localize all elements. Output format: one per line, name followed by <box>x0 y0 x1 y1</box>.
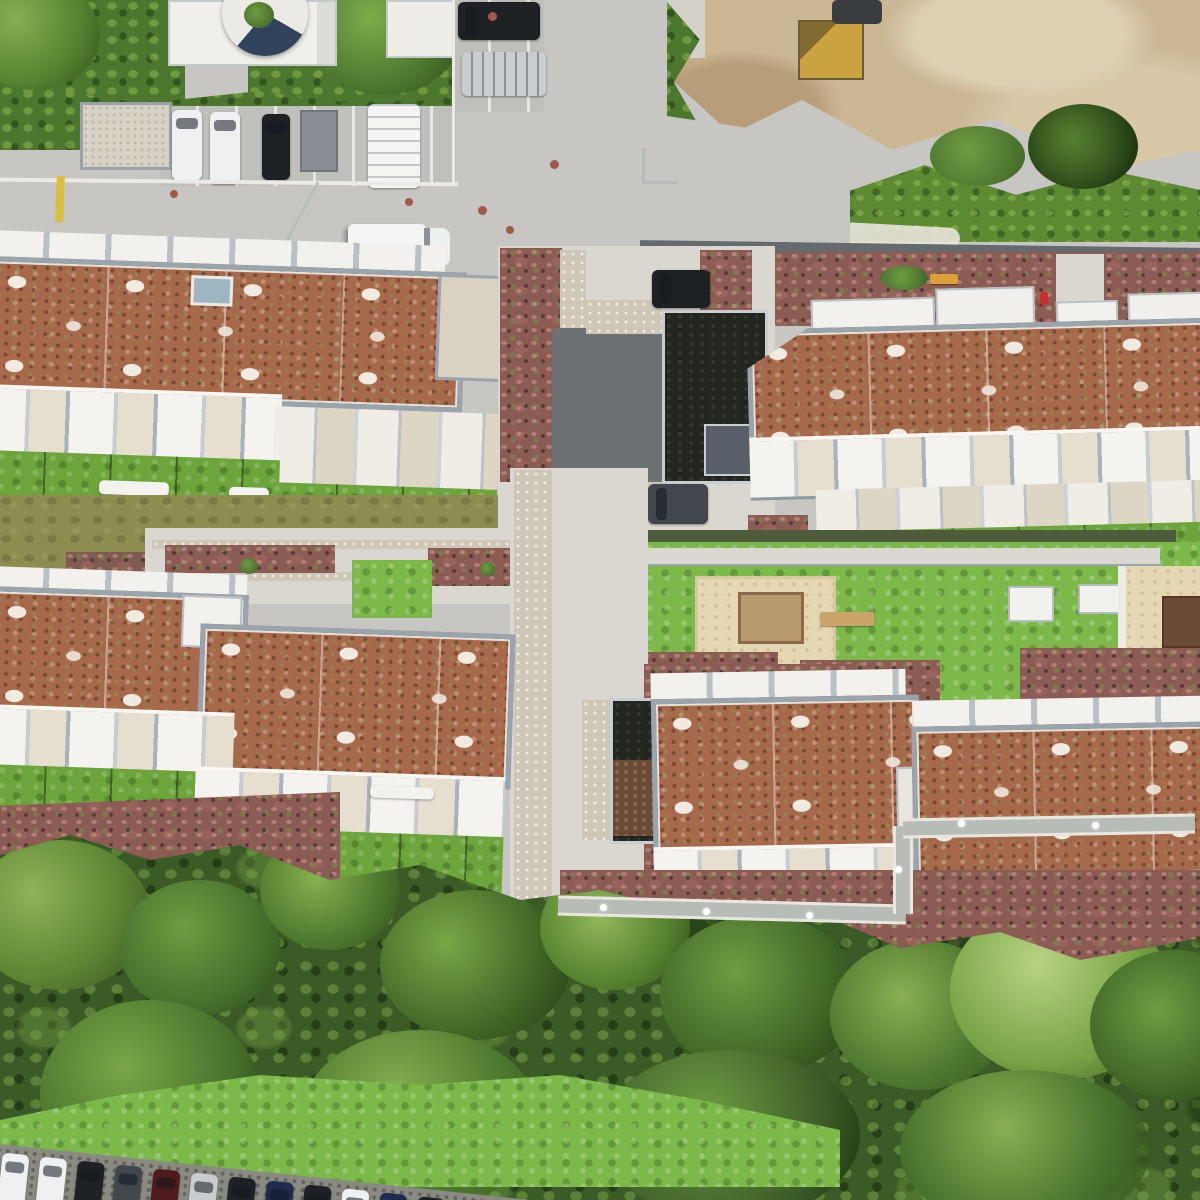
sedum-green-roof <box>911 721 1200 886</box>
forest-lot-parked-car <box>35 1157 68 1200</box>
forest-lot-parked-car <box>186 1172 219 1200</box>
yellow-curb-marking <box>55 176 65 222</box>
parked-van-silver <box>462 52 546 96</box>
path-light <box>806 912 813 919</box>
path-light <box>1092 822 1099 829</box>
parked-car <box>210 112 240 184</box>
garden-shed <box>1078 584 1122 614</box>
manhole-cover <box>405 198 413 206</box>
sedum-green-roof <box>195 623 515 789</box>
forest-lot-parked-car <box>72 1160 105 1200</box>
bush-dark <box>1028 104 1138 189</box>
parked-van-dark <box>458 2 540 40</box>
forest-lot-parked-car <box>261 1180 294 1200</box>
forest-lot-parked-car <box>413 1196 446 1200</box>
manhole-cover <box>488 12 497 21</box>
asphalt-drive <box>552 328 662 484</box>
gravel-roof-enclosure <box>80 102 172 170</box>
parked-car <box>172 110 202 180</box>
play-structure <box>738 592 804 644</box>
forest-lot-parked-car <box>224 1176 257 1200</box>
utility-cabinet <box>300 110 338 172</box>
forest-lot-parked-car <box>110 1164 143 1200</box>
site-shed-yellow <box>798 20 864 80</box>
plaza-parked-car <box>648 484 708 524</box>
parked-van <box>368 104 420 188</box>
courtyard-path <box>640 548 1160 566</box>
tree-crown <box>660 915 860 1075</box>
forest-lot-parked-car <box>0 1153 30 1200</box>
roof-skylight-glass <box>190 275 233 306</box>
plaza-parked-car <box>652 270 710 308</box>
path-light <box>958 820 965 827</box>
manhole-cover <box>506 226 514 234</box>
parked-car <box>262 114 290 180</box>
balcony-terraces-lower <box>272 406 500 495</box>
bush <box>930 126 1025 186</box>
street-lamp-pole <box>642 148 645 184</box>
kerb-line <box>452 0 455 185</box>
street-lamp-arm <box>642 181 678 184</box>
balcony-plants <box>244 2 274 28</box>
forest-lot-parked-car <box>299 1184 332 1200</box>
tree-crown <box>900 1070 1150 1200</box>
path-light <box>703 908 710 915</box>
forest-lot-parked-car <box>375 1192 408 1200</box>
garden-bench <box>370 785 434 799</box>
garden-shed <box>1008 586 1054 622</box>
sedum-green-roof <box>651 695 922 860</box>
play-tower <box>1162 596 1200 648</box>
paver-apron <box>586 300 662 334</box>
path-light <box>600 904 607 911</box>
manhole-cover <box>478 206 487 215</box>
tree-crown <box>120 880 280 1015</box>
garden-bench <box>99 480 169 496</box>
path-light <box>895 866 902 873</box>
forest-lot-parked-car <box>148 1168 181 1200</box>
manhole-cover <box>170 190 178 198</box>
paver-apron <box>582 700 612 840</box>
aerial-photo-canvas <box>0 0 1200 1200</box>
manhole-cover <box>550 160 559 169</box>
forest-lot-parked-car <box>337 1188 370 1200</box>
excavator <box>832 0 882 24</box>
wooden-bench <box>820 612 874 626</box>
